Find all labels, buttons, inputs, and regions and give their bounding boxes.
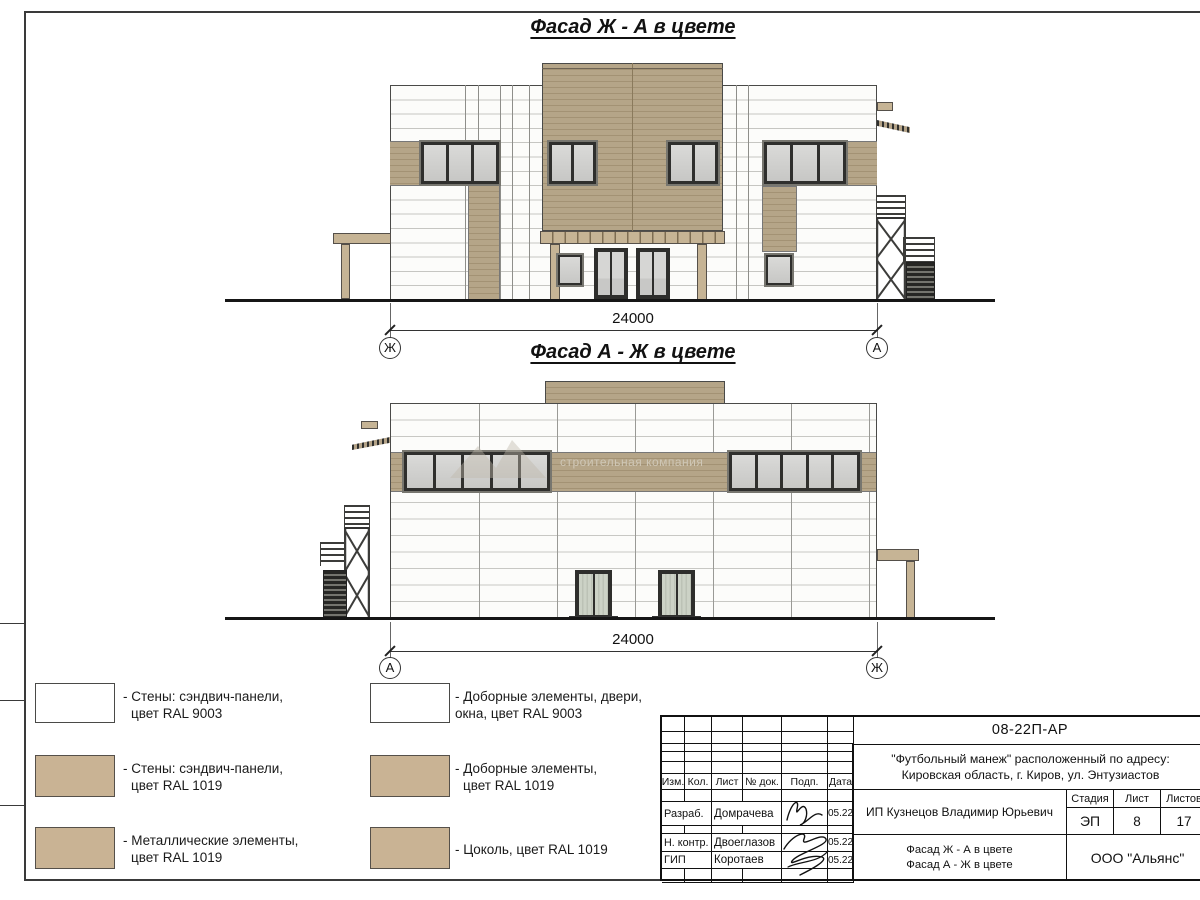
tb-sheet-title: Фасад Ж - А в цвете Фасад А - Ж в цвете <box>852 835 1067 881</box>
signature-dvoeglazov-korotaev <box>778 827 836 879</box>
tb-cell <box>685 790 712 802</box>
door-leaf <box>662 574 676 615</box>
window-pane <box>407 455 433 488</box>
facade2-title: Фасад А - Ж в цвете <box>433 341 833 364</box>
door-leaf <box>612 252 624 295</box>
facade1-window-3 <box>666 140 720 186</box>
facade1-right-awning <box>877 120 910 133</box>
facade2-door-right <box>658 570 695 619</box>
axis-marker-zh: Ж <box>866 657 888 679</box>
tb-cell <box>743 762 782 774</box>
legend-label: - Доборные элементы, двери, окна, цвет R… <box>455 688 695 722</box>
tb-cell <box>712 744 743 752</box>
stair-flight <box>906 262 935 300</box>
tb-cell <box>743 717 782 732</box>
panel-seam <box>500 85 501 300</box>
tb-cell <box>662 826 685 834</box>
legend-label: - Стены: сэндвич-панели, цвет RAL 9003 <box>123 688 363 722</box>
door-leaf <box>579 574 593 615</box>
tb-sheet-title-line2: Фасад А - Ж в цвете <box>906 858 1012 873</box>
margin-mark <box>0 805 24 806</box>
ground-line <box>225 299 995 302</box>
legend-label: - Металлические элементы, цвет RAL 1019 <box>123 832 363 866</box>
legend-line: - Металлические элементы, <box>123 832 363 849</box>
door-leaf <box>678 574 692 615</box>
facade2-left-ledge <box>361 421 378 429</box>
facade1-window-4 <box>762 140 848 186</box>
tb-cell <box>743 744 782 752</box>
stair-railing <box>344 505 370 529</box>
tb-client: ИП Кузнецов Владимир Юрьевич <box>852 790 1067 835</box>
tb-header-podp: Подп. <box>782 774 828 790</box>
tb-cell <box>685 826 712 834</box>
tb-sheets-label: Листов <box>1161 790 1200 808</box>
tb-cell <box>685 762 712 774</box>
legend-swatch-ral1019 <box>370 827 450 869</box>
tb-sheet-title-line1: Фасад Ж - А в цвете <box>906 843 1012 858</box>
facade1-right-ledge <box>877 102 893 111</box>
extension-line <box>877 303 878 341</box>
legend-swatch-ral9003 <box>370 683 450 723</box>
tb-sheets-value: 17 <box>1161 808 1200 835</box>
tb-company: ООО "Альянс" <box>1067 835 1200 881</box>
window-pane <box>758 455 781 488</box>
door-leaf <box>654 252 666 295</box>
panel-seam <box>748 85 749 300</box>
legend-line: окна, цвет RAL 9003 <box>455 705 695 722</box>
facade1-entrance-door-left <box>594 248 628 299</box>
facade1-tan-band-right <box>848 141 877 186</box>
tb-cell <box>782 752 828 762</box>
tb-date: 05.22 <box>828 802 854 826</box>
window-pane <box>560 257 580 283</box>
facade2-left-awning <box>352 437 390 450</box>
window-pane <box>695 145 716 181</box>
tb-name-dvoeglazov: Двоеглазов <box>712 834 782 852</box>
legend-label: - Доборные элементы, цвет RAL 1019 <box>455 760 695 794</box>
tb-cell <box>743 752 782 762</box>
window-pane <box>671 145 692 181</box>
stair-x-frame <box>876 219 906 300</box>
facade2-right-canopy-slab <box>877 549 919 561</box>
sheet-frame-left <box>24 11 26 881</box>
facade1-tan-strip <box>468 186 500 300</box>
tb-cell <box>712 752 743 762</box>
window-pane <box>767 145 790 181</box>
tb-cell <box>828 752 854 762</box>
dimension-line <box>390 651 878 652</box>
window-pane <box>552 145 571 181</box>
dimension-value: 24000 <box>593 631 673 648</box>
tower-seam <box>632 63 633 231</box>
legend-swatch-ral1019 <box>35 827 115 869</box>
dimension-value: 24000 <box>593 310 673 327</box>
facade1-left-canopy-slab <box>333 233 391 244</box>
legend-label: - Стены: сэндвич-панели, цвет RAL 1019 <box>123 760 363 794</box>
sheet-frame-top <box>24 11 1200 13</box>
tb-cell <box>782 762 828 774</box>
tb-cell <box>662 869 685 883</box>
legend-line: - Стены: сэндвич-панели, <box>123 688 363 705</box>
tb-project-line2: Кировская область, г. Киров, ул. Энтузиа… <box>902 767 1160 783</box>
tb-cell <box>662 732 685 744</box>
axis-marker-zh: Ж <box>379 337 401 359</box>
window-pane <box>474 145 496 181</box>
drawing-sheet: Фасад Ж - А в цвете <box>0 0 1200 900</box>
tb-cell <box>743 790 782 802</box>
tb-sheet-value: 8 <box>1114 808 1161 835</box>
legend-swatch-ral1019 <box>35 755 115 797</box>
tb-cell <box>712 826 743 834</box>
window-pane <box>424 145 446 181</box>
tb-project-line1: "Футбольный манеж" расположенный по адре… <box>891 751 1170 767</box>
tb-name-domracheva: Домрачева <box>712 802 782 826</box>
legend-swatch-ral1019 <box>370 755 450 797</box>
window-pane <box>783 455 806 488</box>
window-pane <box>574 145 593 181</box>
tb-cell <box>685 752 712 762</box>
tb-cell <box>662 762 685 774</box>
tb-cell <box>712 869 743 883</box>
door-leaf <box>640 252 652 295</box>
tb-name-korotaev: Коротаев <box>712 852 782 869</box>
facade1-tan-band-left <box>390 141 419 186</box>
tb-cell <box>828 744 854 752</box>
panel-seam <box>512 85 513 300</box>
window-pane <box>834 455 857 488</box>
legend-line: - Доборные элементы, двери, <box>455 688 695 705</box>
tb-cell <box>685 732 712 744</box>
tb-cell <box>685 744 712 752</box>
facade1-tan-strip <box>762 186 797 252</box>
window-pane <box>768 257 790 283</box>
tower-cap-line <box>542 68 723 69</box>
facade2-roof-structure <box>545 381 725 404</box>
legend-line: цвет RAL 9003 <box>123 705 363 722</box>
tb-sheet-label: Лист <box>1114 790 1161 808</box>
extension-line <box>877 622 878 662</box>
legend-line: цвет RAL 1019 <box>455 777 695 794</box>
tb-cell <box>662 790 685 802</box>
tb-role-razrab: Разраб. <box>662 802 712 826</box>
tb-cell <box>712 790 743 802</box>
facade1-small-window-right <box>764 253 794 287</box>
tb-cell <box>662 752 685 762</box>
facade1-entrance-door-right <box>636 248 670 299</box>
tb-cell <box>712 762 743 774</box>
window-pane <box>809 455 832 488</box>
tb-stage-label: Стадия <box>1067 790 1114 808</box>
panel-seam <box>465 85 466 300</box>
tb-cell <box>743 869 782 883</box>
tb-cell <box>712 732 743 744</box>
margin-mark <box>0 623 24 624</box>
stair-flight <box>323 570 347 618</box>
margin-mark <box>0 700 24 701</box>
door-leaf <box>595 574 609 615</box>
legend-line: цвет RAL 1019 <box>123 849 363 866</box>
tb-cell <box>782 717 828 732</box>
legend-label: - Цоколь, цвет RAL 1019 <box>455 841 695 858</box>
tb-header-izm: Изм. <box>662 774 685 790</box>
window-pane <box>449 145 471 181</box>
company-logo-watermark <box>448 438 548 482</box>
tb-cell <box>828 790 854 802</box>
ground-line <box>225 617 995 620</box>
tb-cell <box>782 732 828 744</box>
tb-header-doc: № док. <box>743 774 782 790</box>
tb-cell <box>782 744 828 752</box>
tb-header-kol: Кол. <box>685 774 712 790</box>
legend-line: - Доборные элементы, <box>455 760 695 777</box>
tb-stage-value: ЭП <box>1067 808 1114 835</box>
stair-x-frame <box>344 529 370 618</box>
door-leaf <box>598 252 610 295</box>
legend-line: - Стены: сэндвич-панели, <box>123 760 363 777</box>
panel-seam <box>736 85 737 300</box>
tb-role-gip: ГИП <box>662 852 712 869</box>
tb-role-nkontr: Н. контр. <box>662 834 712 852</box>
dimension-line <box>390 330 878 331</box>
legend-line: - Цоколь, цвет RAL 1019 <box>455 841 695 858</box>
tb-cell <box>743 826 782 834</box>
facade1-window-1 <box>419 140 501 186</box>
stair-railing <box>876 195 906 219</box>
facade1-title: Фасад Ж - А в цвете <box>433 16 833 39</box>
canopy-post <box>697 244 707 300</box>
window-pane <box>793 145 816 181</box>
facade2-door-left <box>575 570 612 619</box>
facade1-small-window-left <box>556 253 584 287</box>
tb-cell <box>828 732 854 744</box>
tb-cell <box>828 762 854 774</box>
facade1-left-canopy-post <box>341 244 350 299</box>
tb-header-data: Дата <box>828 774 854 790</box>
extension-line <box>390 303 391 341</box>
tb-cell <box>685 717 712 732</box>
window-pane <box>820 145 843 181</box>
extension-line <box>390 622 391 662</box>
tb-cell <box>662 744 685 752</box>
tb-cell <box>743 732 782 744</box>
facade1-window-2 <box>547 140 598 186</box>
stair-railing <box>903 237 935 262</box>
axis-marker-a: А <box>379 657 401 679</box>
tb-cell <box>712 717 743 732</box>
facade2-right-canopy-post <box>906 561 915 619</box>
legend-line: цвет RAL 1019 <box>123 777 363 794</box>
tb-doc-number: 08-22П-АР <box>852 715 1200 745</box>
axis-marker-a: А <box>866 337 888 359</box>
signature-domracheva <box>782 794 826 828</box>
facade2-wall <box>390 403 877 620</box>
entrance-canopy-slats <box>540 231 725 244</box>
tb-cell <box>828 717 854 732</box>
panel-seam <box>529 85 530 300</box>
watermark-text: строительная компания <box>560 455 760 469</box>
stair-railing <box>320 542 346 566</box>
tb-header-list: Лист <box>712 774 743 790</box>
tb-project-name: "Футбольный манеж" расположенный по адре… <box>852 745 1200 790</box>
tb-cell <box>662 717 685 732</box>
tb-cell <box>685 869 712 883</box>
legend-swatch-ral9003 <box>35 683 115 723</box>
